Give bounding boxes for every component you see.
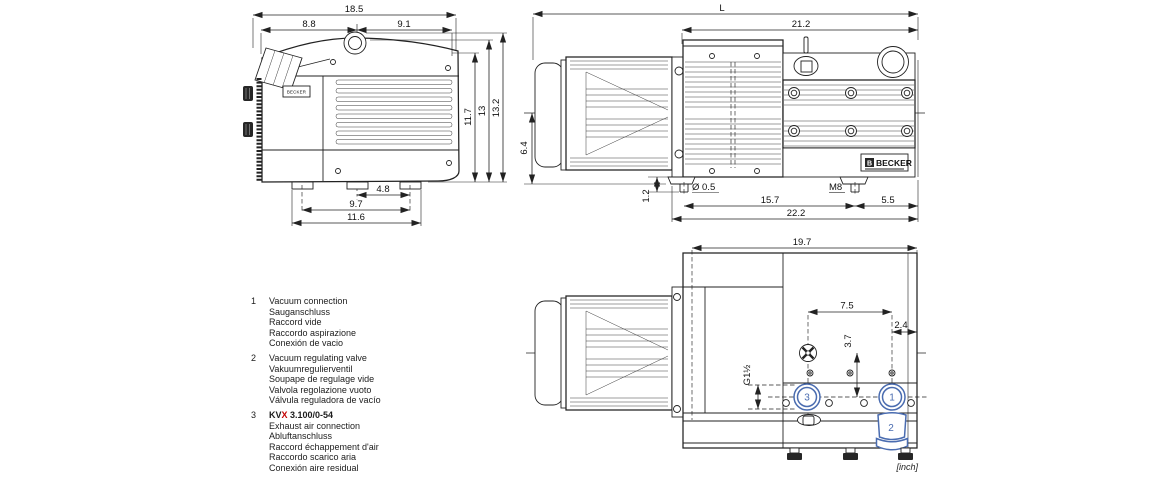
legend-item-number: 3 [251, 410, 261, 474]
motor-flange [672, 287, 683, 417]
dim-feet-center: 4.8 [376, 184, 389, 195]
flange-bolt [675, 67, 683, 75]
dim-foot-height: 1.2 [641, 189, 652, 202]
dim-body-length: 21.2 [792, 19, 811, 30]
brand-plate-label: BECKER [287, 90, 306, 95]
legend-line: Vacuum connection [269, 296, 356, 307]
legend-line: Vakuumregulierventil [269, 364, 381, 375]
dim-feet-outer: 11.6 [347, 212, 365, 223]
legend-line: Abluftanschluss [269, 431, 379, 442]
screw-icon [331, 60, 336, 65]
dim-total-width: 18.5 [345, 4, 364, 15]
datasheet-drawing-page: BECKER 18.5 8.8 9.1 11.7 13 13.2 4 [0, 0, 1160, 480]
becker-logo: B BECKER [861, 154, 912, 171]
callout-2-label: 2 [888, 423, 894, 434]
dim-left-width: 8.8 [302, 19, 315, 30]
screw-icon [710, 169, 715, 174]
callout-1-label: 1 [889, 393, 895, 404]
front-view-drawing: BECKER 18.5 8.8 9.1 11.7 13 13.2 4 [240, 0, 520, 240]
legend-item-1: 1 Vacuum connection Sauganschluss Raccor… [251, 296, 421, 349]
foot [292, 182, 313, 189]
dim-top-length: 19.7 [793, 237, 812, 248]
dim-stud-thread: M8 [829, 182, 842, 193]
callout-valve-2: 2 [877, 413, 908, 450]
dim-height-total: 13.2 [491, 99, 502, 118]
dim-height-mid: 13 [477, 106, 488, 117]
legend-line: Raccordo aspirazione [269, 328, 356, 339]
becker-logo-text: BECKER [876, 158, 912, 168]
foot [347, 182, 368, 189]
legend-line: Exhaust air connection [269, 421, 379, 432]
screw-icon [755, 54, 760, 59]
legend-line: Conexión de vacio [269, 338, 356, 349]
callout-3-label: 3 [804, 393, 810, 404]
foot [400, 182, 421, 189]
flange-bolt [674, 294, 681, 301]
front-pump-body: BECKER [243, 32, 459, 189]
legend-item-number: 2 [251, 353, 261, 406]
unit-note: [inch] [895, 462, 918, 472]
dim-rear-overhang: 5.5 [881, 195, 894, 206]
pump-head: B BECKER [783, 37, 918, 177]
legend-line: Vacuum regulating valve [269, 353, 381, 364]
becker-logo-initial: B [867, 161, 872, 168]
callout-port-1: 1 [879, 384, 905, 410]
screw-icon [336, 169, 341, 174]
model-suffix: 3.100/0-54 [288, 410, 334, 420]
legend-line: Soupape de regulage vide [269, 374, 381, 385]
pin [804, 37, 808, 53]
dim-axis-height: 6.4 [519, 141, 530, 154]
screw-icon [710, 54, 715, 59]
dim-valve-offset: 3.7 [843, 334, 854, 347]
dim-port-spacing: 7.5 [840, 301, 853, 312]
dim-feet-inner: 9.7 [349, 199, 362, 210]
dim-right-width: 9.1 [397, 19, 410, 30]
legend: 1 Vacuum connection Sauganschluss Raccor… [251, 296, 421, 478]
legend-line: Sauganschluss [269, 307, 356, 318]
flange-bolt [674, 406, 681, 413]
flange-bolt [675, 150, 683, 158]
legend-line: Raccord vide [269, 317, 356, 328]
callout-port-3: 3 [794, 384, 820, 410]
dim-edge-offset: 2.4 [894, 320, 907, 331]
legend-line: Conexión aire residual [269, 463, 379, 474]
motor [535, 57, 683, 177]
dim-stud-spacing: 15.7 [761, 195, 780, 206]
handle [798, 415, 821, 426]
motor-top [535, 287, 683, 417]
dim-stud-diameter: Ø 0.5 [692, 182, 715, 193]
pump-mid-housing [683, 40, 783, 177]
legend-item-number: 1 [251, 296, 261, 349]
screw-icon [755, 169, 760, 174]
legend-line: Raccord échappement d'air [269, 442, 379, 453]
legend-line: Valvola regolazione vuoto [269, 385, 381, 396]
legend-line: Raccordo scarico aria [269, 452, 379, 463]
legend-item-3: 3 KVX 3.100/0-54 Exhaust air connection … [251, 410, 421, 474]
dim-total-length: L [719, 3, 724, 14]
legend-item-2: 2 Vacuum regulating valve Vakuumregulier… [251, 353, 421, 406]
dim-overall-feet: 22.2 [787, 208, 806, 219]
screw-icon [447, 161, 452, 166]
top-cap [344, 32, 366, 54]
side-knob [243, 86, 253, 101]
legend-line: Válvula reguladora de vacío [269, 395, 381, 406]
screw-icon [446, 66, 451, 71]
sight-glass-square [801, 61, 812, 72]
legend-model-line: KVX 3.100/0-54 [269, 410, 379, 421]
top-view-drawing: 3 1 2 19.7 7.5 2.4 3.7 G1½ [515, 235, 945, 480]
model-prefix: KV [269, 410, 282, 420]
dim-port-thread: G1½ [742, 365, 753, 386]
side-view-drawing: B BECKER L 21.2 6.4 1.2 Ø 0.5 M8 [515, 0, 935, 235]
regulating-valve-knob [800, 345, 817, 362]
side-knob [243, 122, 253, 137]
dim-height-inner: 11.7 [463, 108, 474, 126]
